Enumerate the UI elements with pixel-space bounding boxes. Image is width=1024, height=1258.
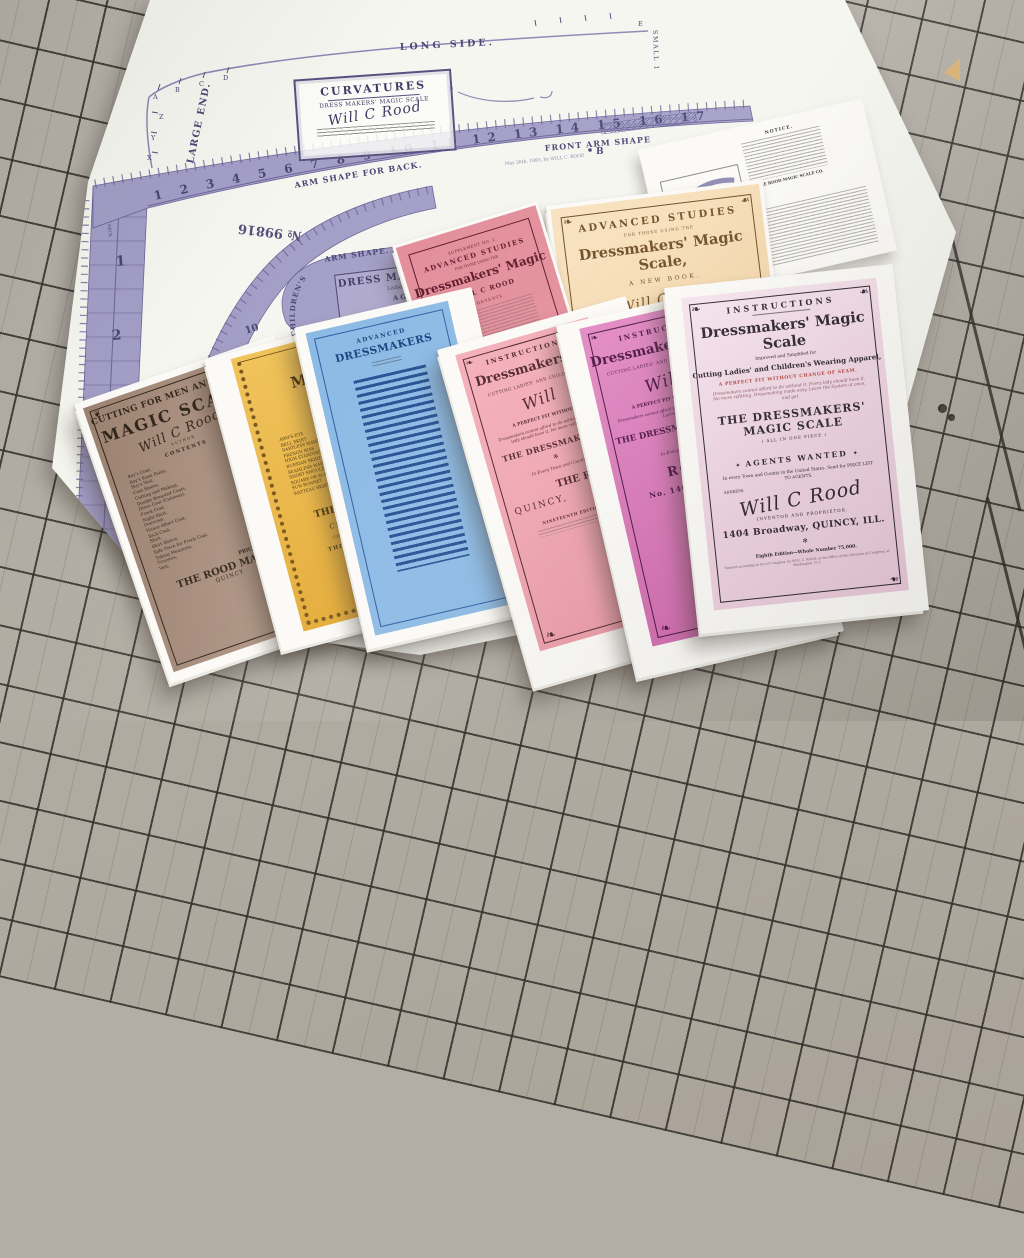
stock-number: № 99816	[237, 220, 302, 243]
left-number-5: 5	[99, 549, 110, 566]
point-b-dot	[588, 148, 592, 152]
left-number-1: 1	[115, 253, 126, 270]
small-end-label: SMALL 1	[651, 30, 660, 71]
corner-ornament-icon: ❧	[859, 287, 869, 298]
curve-letter-e: E	[638, 20, 643, 28]
booklet-instructions-page: ❧ ❧ ❧ INSTRUCTIONS Dressmakers' Magic Sc…	[681, 278, 909, 611]
curve-letter-b: B	[175, 86, 180, 94]
corner-ornament-icon: ❧	[563, 217, 573, 228]
corner-ornament-icon: ❧	[740, 195, 750, 206]
d-mark-curve	[458, 91, 552, 101]
curve-letter-y: Y	[150, 134, 156, 142]
banner-flourish-icon: ✦	[853, 450, 859, 457]
corner-ornament-icon: ❧	[465, 358, 475, 370]
corner-ornament-icon: ❧	[889, 573, 899, 584]
stamp-ornament-icon: ❧	[545, 629, 556, 640]
blue-subtitle-lines	[372, 356, 403, 369]
curvatures-label-box: CURVATURES DRESS MAKERS' MAGIC SCALE Wil…	[293, 69, 456, 162]
point-b-letter: B	[596, 147, 604, 157]
banner-flourish-icon: ✦	[735, 462, 741, 469]
curve-letter-x: X	[147, 154, 152, 162]
patent-line: May 26th, 1885, by WILL C. ROOD	[505, 153, 586, 167]
corner-ornament-icon: ❧	[691, 304, 701, 315]
large-end-label: LARGE END.	[185, 81, 213, 164]
curve-letter-d: D	[223, 74, 228, 82]
curve-letter-z: Z	[159, 113, 164, 121]
booklet-instructions: ❧ ❧ ❧ INSTRUCTIONS Dressmakers' Magic Sc…	[664, 264, 929, 634]
curve-letter-a: A	[152, 93, 158, 101]
stamp-ornament-icon: ❧	[661, 623, 672, 634]
left-number-2: 2	[111, 327, 122, 344]
corner-ornament-icon: ❧	[590, 333, 600, 344]
long-side-label: LONG SIDE.	[400, 37, 496, 53]
